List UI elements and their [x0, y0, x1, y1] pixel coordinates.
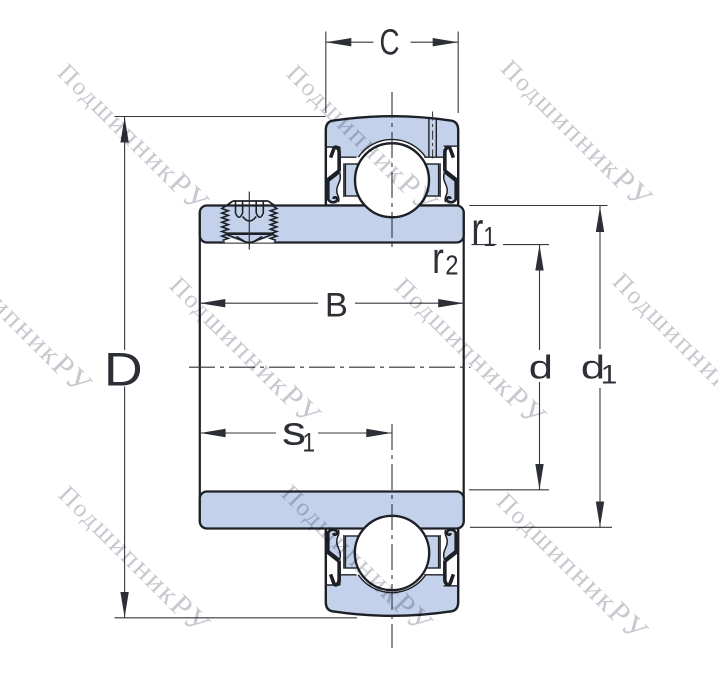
svg-text:1: 1 — [483, 222, 495, 253]
svg-text:d: d — [529, 349, 553, 386]
svg-text:r: r — [471, 204, 483, 255]
svg-text:2: 2 — [445, 249, 458, 281]
svg-text:1: 1 — [601, 360, 618, 390]
svg-text:C: C — [379, 22, 399, 63]
svg-text:r: r — [432, 235, 444, 284]
svg-text:D: D — [104, 342, 143, 395]
svg-text:B: B — [325, 286, 348, 324]
